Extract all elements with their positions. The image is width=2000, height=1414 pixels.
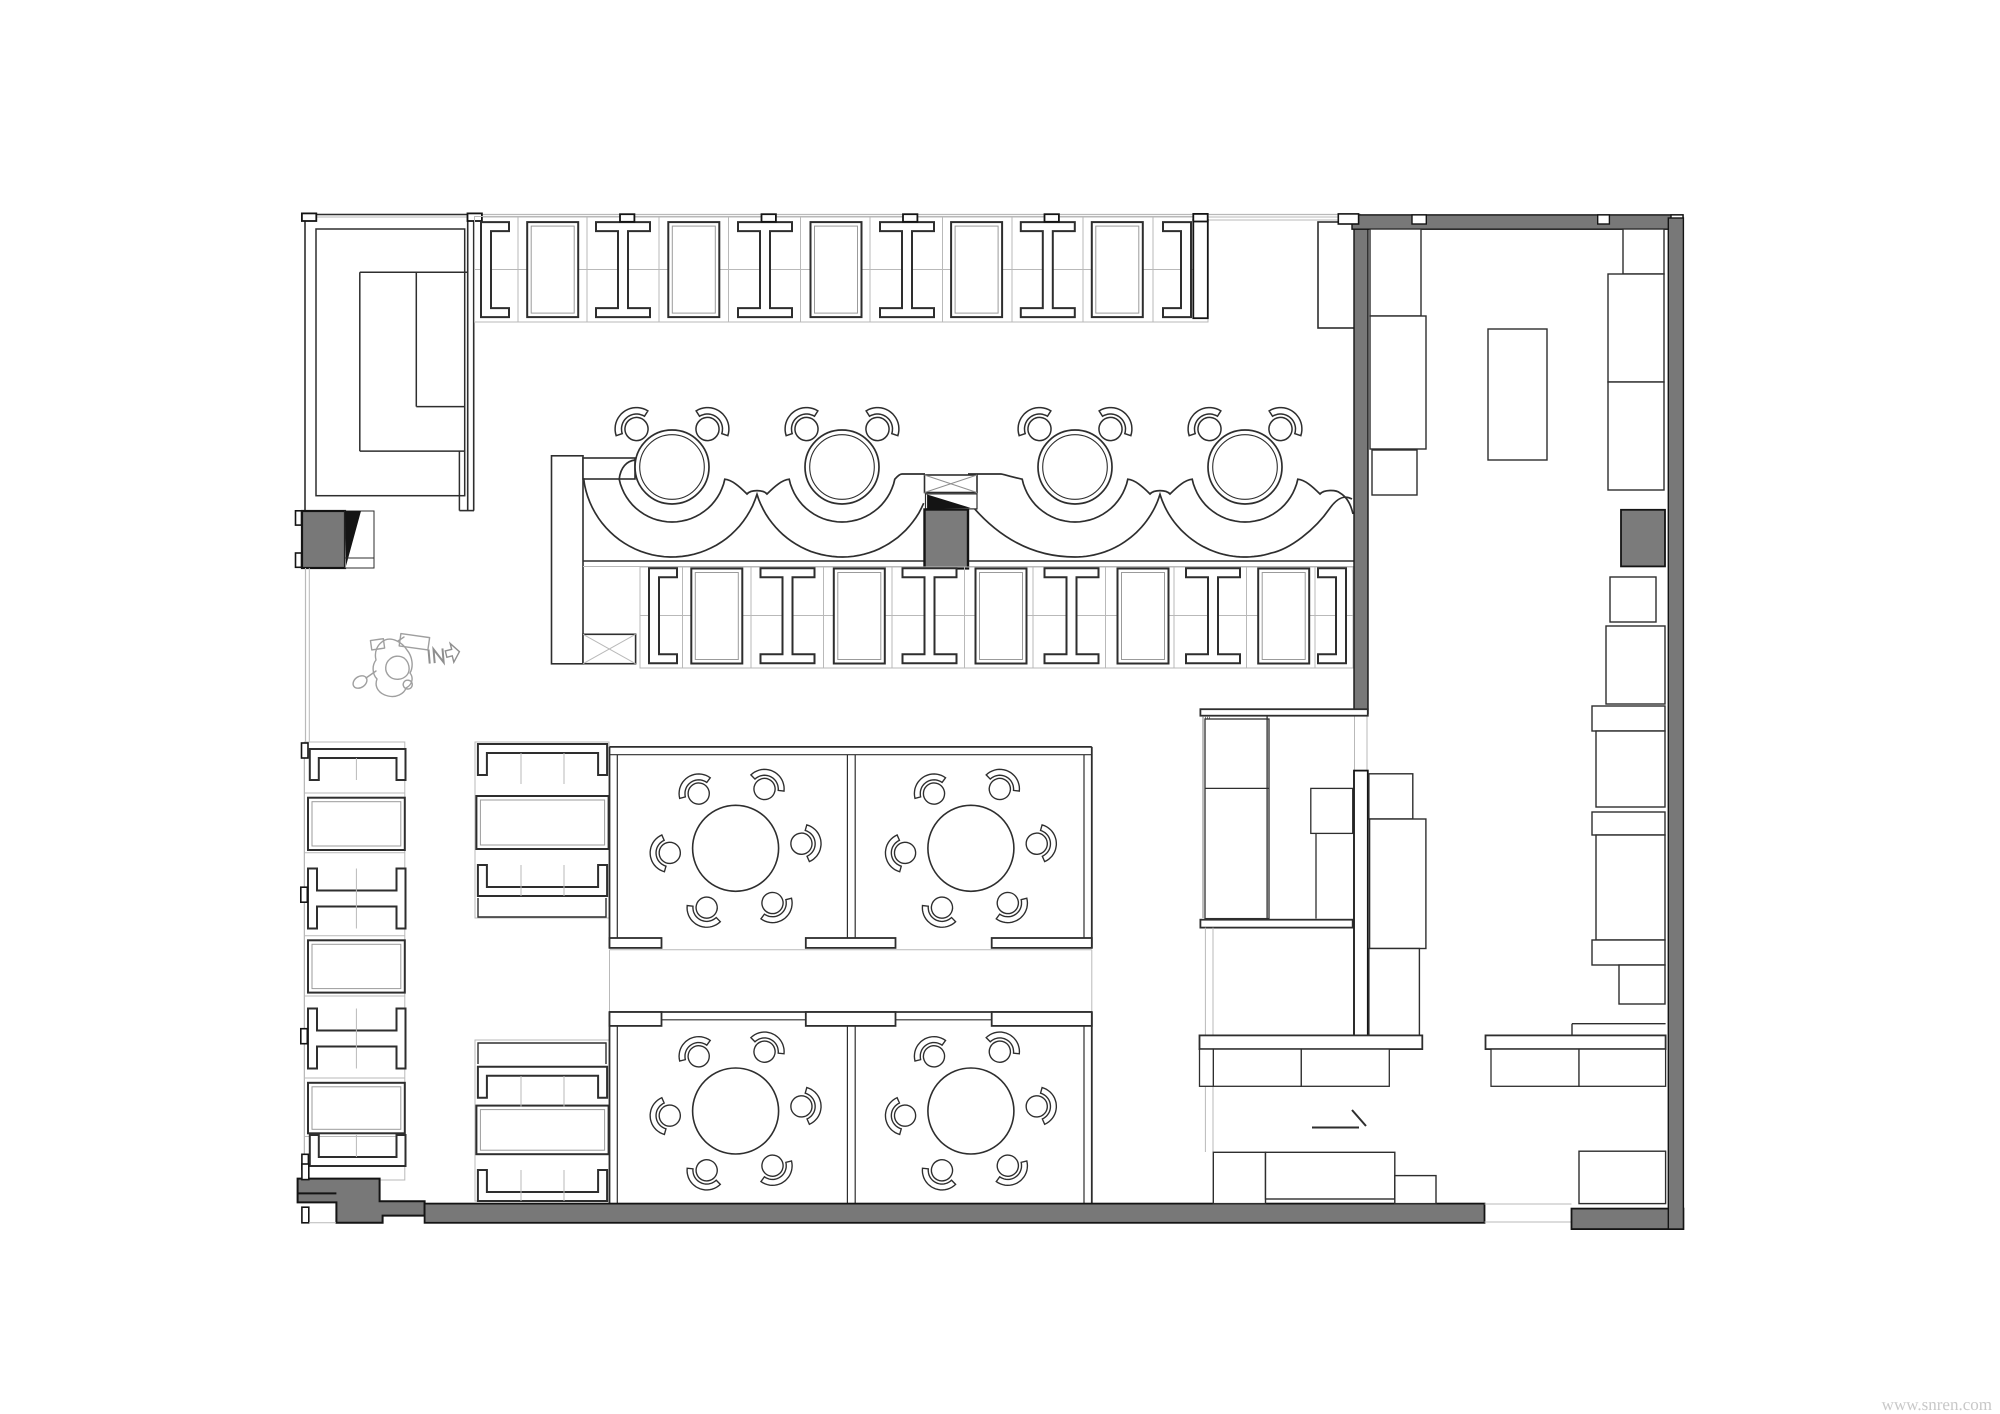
svg-text:www.snren.com: www.snren.com	[1882, 1395, 1992, 1414]
